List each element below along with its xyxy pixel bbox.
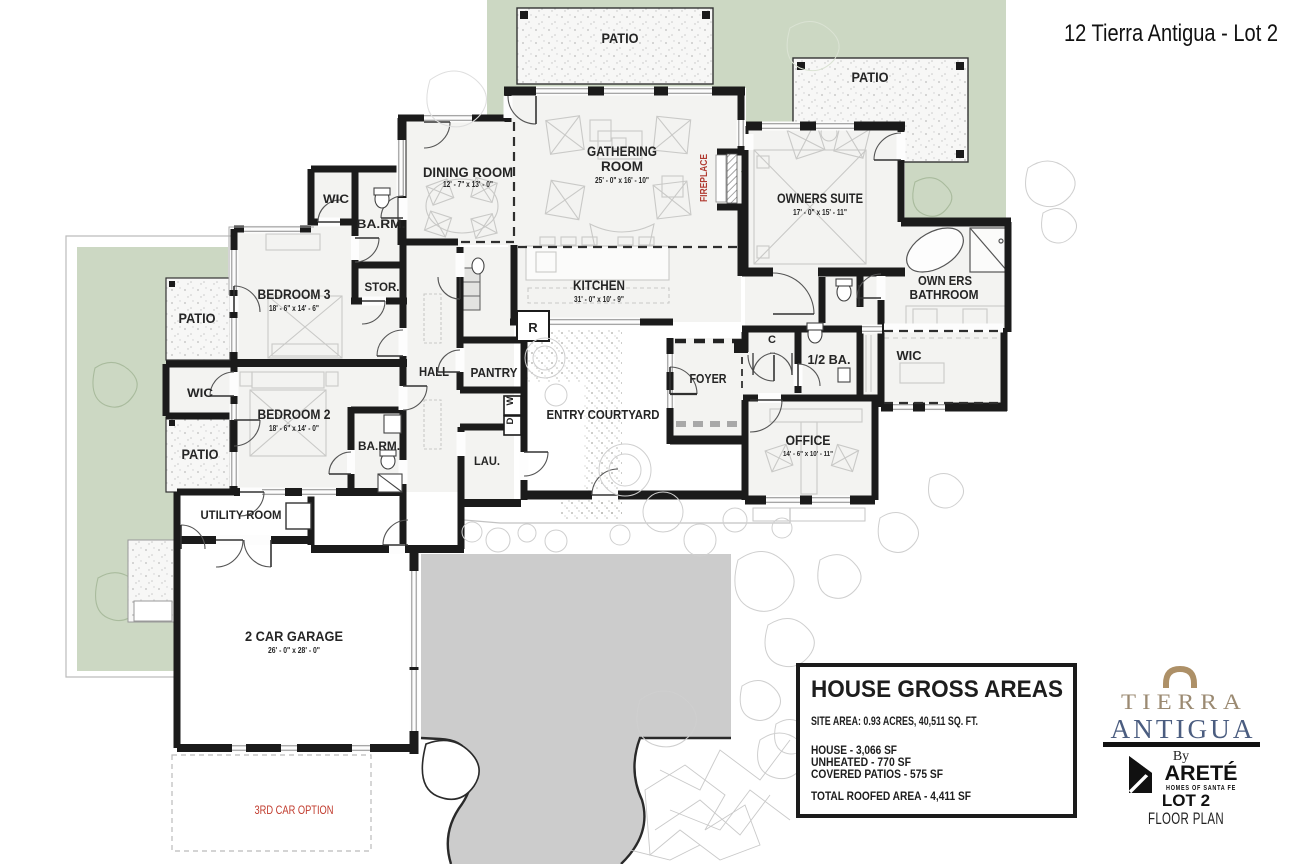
svg-text:LOT 2: LOT 2	[1162, 791, 1210, 810]
svg-text:PATIO: PATIO	[852, 69, 889, 85]
svg-text:OWNERS SUITE: OWNERS SUITE	[777, 190, 863, 206]
svg-text:PANTRY: PANTRY	[471, 366, 519, 380]
svg-text:ROOM: ROOM	[601, 158, 643, 174]
svg-text:HALL: HALL	[419, 365, 449, 379]
svg-text:12 Tierra Antigua - Lot 2: 12 Tierra Antigua - Lot 2	[1064, 20, 1278, 47]
svg-text:17' - 0" x 15' - 11": 17' - 0" x 15' - 11"	[793, 208, 847, 217]
svg-text:LAU.: LAU.	[474, 456, 500, 468]
svg-text:R: R	[528, 320, 538, 335]
svg-text:ANTIGUA: ANTIGUA	[1111, 714, 1256, 744]
svg-text:BATHROOM: BATHROOM	[910, 288, 979, 302]
svg-text:BA.RM.: BA.RM.	[358, 441, 400, 453]
svg-text:DINING ROOM: DINING ROOM	[423, 164, 513, 180]
svg-text:TOTAL ROOFED AREA - 4,411 SF: TOTAL ROOFED AREA - 4,411 SF	[811, 791, 971, 803]
svg-text:1/2 BA.: 1/2 BA.	[808, 353, 851, 367]
svg-text:GATHERING: GATHERING	[587, 143, 657, 159]
svg-text:2 CAR GARAGE: 2 CAR GARAGE	[245, 628, 343, 644]
svg-text:18' - 6" x 14' - 0": 18' - 6" x 14' - 0"	[269, 424, 319, 433]
svg-text:OWN ERS: OWN ERS	[918, 274, 972, 288]
svg-text:D: D	[505, 417, 516, 424]
svg-text:KITCHEN: KITCHEN	[573, 277, 625, 293]
svg-text:BEDROOM 2: BEDROOM 2	[258, 406, 331, 422]
svg-text:W: W	[505, 396, 516, 405]
svg-text:25' - 0" x 16' - 10": 25' - 0" x 16' - 10"	[595, 176, 649, 185]
svg-text:ARETÉ: ARETÉ	[1165, 762, 1238, 785]
svg-text:STOR.: STOR.	[365, 282, 400, 294]
svg-text:SITE AREA: 0.93 ACRES, 40,511: SITE AREA: 0.93 ACRES, 40,511 SQ. FT.	[811, 716, 978, 728]
svg-text:12' - 7" x 13' - 0": 12' - 7" x 13' - 0"	[443, 180, 493, 189]
svg-text:PATIO: PATIO	[602, 30, 639, 46]
svg-text:FOYER: FOYER	[690, 372, 727, 386]
svg-text:3RD CAR OPTION: 3RD CAR OPTION	[255, 805, 334, 817]
svg-text:BA.RM.: BA.RM.	[357, 219, 406, 231]
svg-text:WIC: WIC	[187, 388, 213, 400]
svg-text:C: C	[768, 334, 776, 346]
svg-text:14' - 6" x 10' - 11": 14' - 6" x 10' - 11"	[783, 449, 833, 458]
svg-text:BEDROOM 3: BEDROOM 3	[258, 286, 331, 302]
svg-text:OFFICE: OFFICE	[786, 432, 831, 448]
svg-text:FIREPLACE: FIREPLACE	[699, 154, 710, 202]
svg-text:31' - 0" x 10' - 9": 31' - 0" x 10' - 9"	[574, 295, 624, 304]
svg-text:WIC: WIC	[323, 194, 349, 206]
svg-text:WIC: WIC	[897, 349, 922, 363]
svg-text:UTILITY ROOM: UTILITY ROOM	[201, 508, 282, 522]
svg-text:UNHEATED - 770 SF: UNHEATED - 770 SF	[811, 757, 911, 769]
svg-text:ENTRY COURTYARD: ENTRY COURTYARD	[547, 407, 660, 422]
svg-text:PATIO: PATIO	[179, 310, 216, 326]
svg-text:HOUSE - 3,066 SF: HOUSE - 3,066 SF	[811, 745, 897, 757]
svg-text:COVERED PATIOS - 575 SF: COVERED PATIOS - 575 SF	[811, 769, 943, 781]
svg-text:26' - 0" x 28' - 0": 26' - 0" x 28' - 0"	[268, 646, 320, 655]
svg-text:PATIO: PATIO	[182, 446, 219, 462]
svg-text:TIERRA: TIERRA	[1121, 689, 1247, 714]
svg-text:FLOOR PLAN: FLOOR PLAN	[1148, 809, 1224, 828]
svg-text:HOUSE GROSS AREAS: HOUSE GROSS AREAS	[811, 676, 1063, 703]
svg-text:18' - 6" x 14' - 6": 18' - 6" x 14' - 6"	[269, 304, 319, 313]
